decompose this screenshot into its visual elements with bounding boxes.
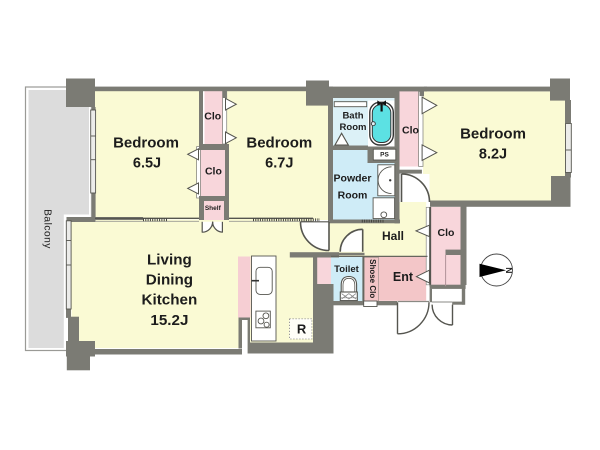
svg-text:Bedroom: Bedroom	[113, 135, 179, 152]
svg-text:Living: Living	[147, 251, 192, 268]
svg-text:Clo: Clo	[402, 125, 419, 137]
svg-text:N: N	[504, 267, 514, 273]
svg-text:Powder: Powder	[334, 173, 372, 185]
svg-text:6.5J: 6.5J	[133, 156, 161, 172]
svg-text:Toilet: Toilet	[334, 264, 359, 275]
svg-text:15.2J: 15.2J	[150, 312, 188, 329]
svg-text:Bedroom: Bedroom	[246, 135, 312, 152]
svg-text:Balcony: Balcony	[41, 209, 52, 249]
svg-text:Room: Room	[340, 122, 367, 133]
svg-text:Ent: Ent	[393, 270, 414, 284]
svg-text:Bedroom: Bedroom	[460, 126, 526, 143]
svg-text:Shelf: Shelf	[205, 205, 222, 212]
svg-text:Clo: Clo	[205, 166, 222, 178]
svg-text:Shose Clo: Shose Clo	[368, 259, 377, 298]
svg-text:Room: Room	[338, 190, 368, 202]
svg-text:Hall: Hall	[382, 229, 404, 243]
svg-text:Clo: Clo	[438, 227, 455, 239]
svg-text:Kitchen: Kitchen	[142, 292, 198, 309]
svg-text:8.2J: 8.2J	[479, 146, 507, 162]
svg-text:6.7J: 6.7J	[265, 156, 293, 172]
svg-text:Dining: Dining	[146, 272, 193, 289]
svg-text:R: R	[297, 322, 307, 337]
svg-text:PS: PS	[380, 151, 389, 158]
svg-text:Bath: Bath	[342, 111, 363, 122]
svg-text:Clo: Clo	[204, 110, 221, 122]
